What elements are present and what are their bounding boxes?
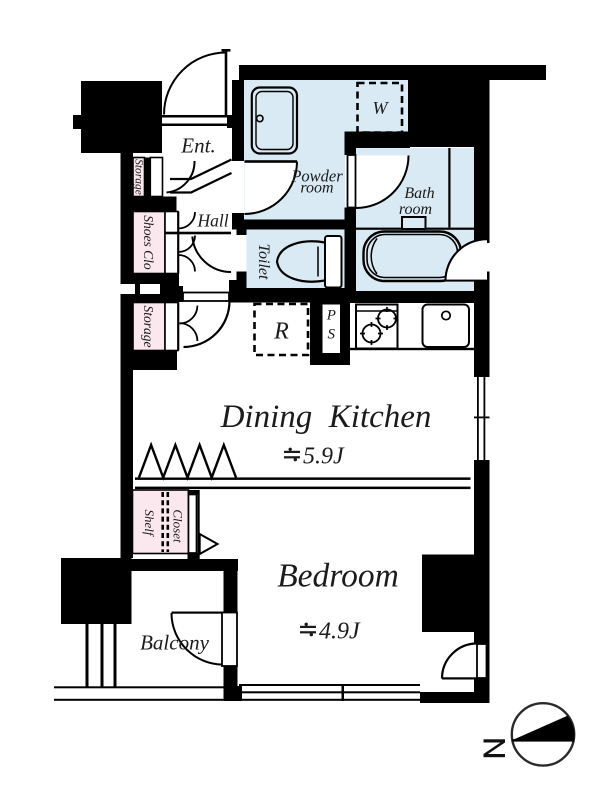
svg-text:Storage: Storage bbox=[133, 159, 145, 195]
svg-text:Bedroom: Bedroom bbox=[277, 558, 399, 595]
svg-text:Closet: Closet bbox=[170, 509, 185, 543]
svg-text:5.9J: 5.9J bbox=[303, 443, 345, 469]
svg-text:room: room bbox=[300, 180, 333, 197]
svg-text:S: S bbox=[328, 327, 336, 343]
svg-text:4.9J: 4.9J bbox=[319, 618, 361, 644]
svg-text:Shoes Clo: Shoes Clo bbox=[141, 215, 156, 270]
svg-text:Dining Kitchen: Dining Kitchen bbox=[220, 399, 432, 435]
svg-text:W: W bbox=[373, 98, 390, 118]
svg-text:Storage: Storage bbox=[141, 306, 156, 348]
svg-text:Bath: Bath bbox=[404, 185, 434, 202]
svg-text:Ent.: Ent. bbox=[180, 134, 215, 158]
svg-text:Toilet: Toilet bbox=[255, 244, 272, 280]
svg-text:room: room bbox=[399, 201, 432, 218]
svg-text:P: P bbox=[326, 308, 336, 324]
svg-text:Balcony: Balcony bbox=[140, 631, 209, 655]
svg-text:Shelf: Shelf bbox=[142, 510, 157, 538]
svg-text:Hall: Hall bbox=[196, 211, 228, 231]
svg-text:R: R bbox=[273, 319, 289, 345]
